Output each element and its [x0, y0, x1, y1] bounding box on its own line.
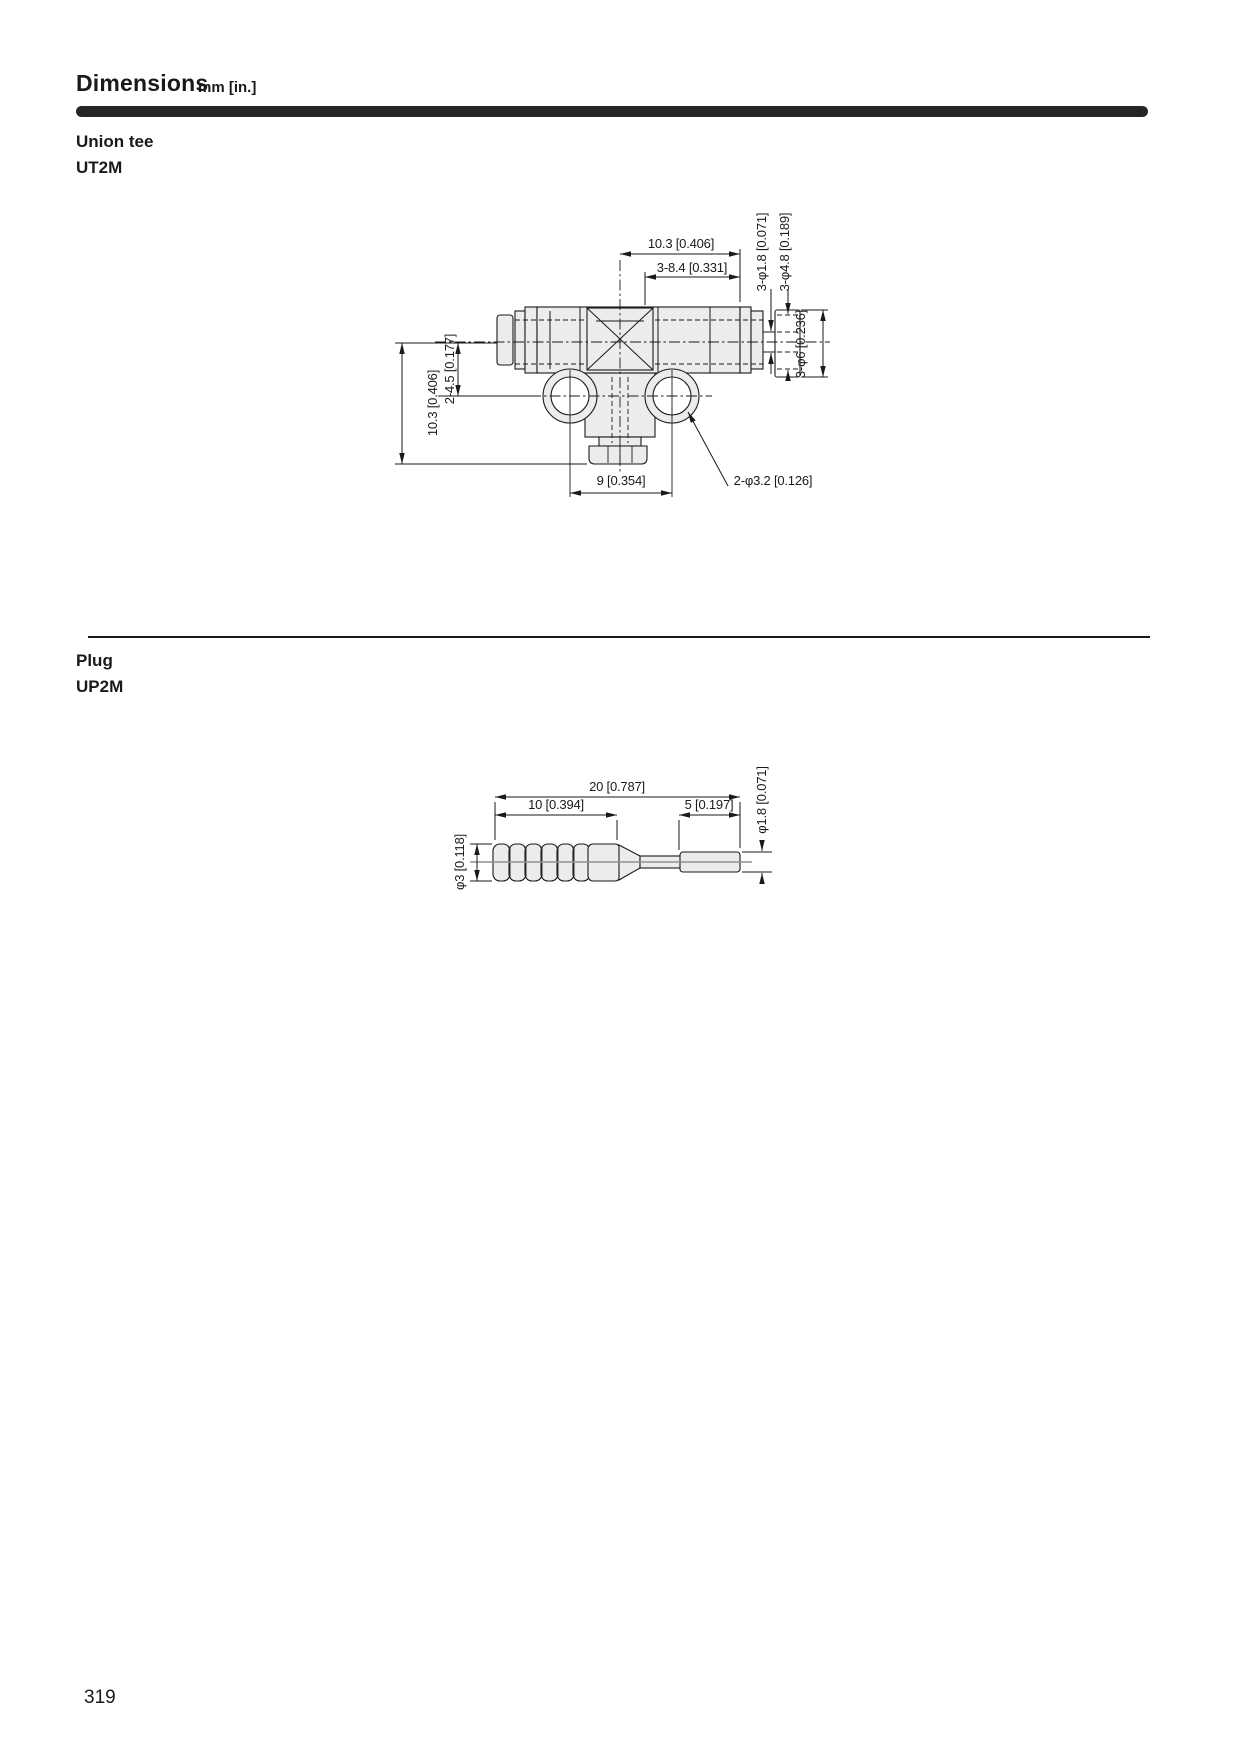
catalog-page: Dimensions mm [in.] Union tee UT2M: [0, 0, 1240, 1754]
section-separator: [88, 636, 1150, 638]
plug-body: [470, 844, 752, 881]
title-underline-bar: [76, 106, 1148, 117]
dim-label-tee-hole-3-2: 2-φ3.2 [0.126]: [734, 474, 813, 488]
plug-model: UP2M: [76, 677, 123, 697]
dim-label-plug-barb-dia: φ3 [0.118]: [453, 834, 467, 890]
dim-label-tee-hole-4-8: 3-φ4.8 [0.189]: [778, 213, 792, 292]
dim-label-tee-hole-6: 3-φ6 [0.236]: [794, 310, 808, 378]
union-tee-heading: Union tee: [76, 132, 153, 152]
dim-label-tee-port-depth: 3-8.4 [0.331]: [657, 261, 727, 275]
page-title: Dimensions: [76, 70, 208, 97]
dim-label-plug-barb-len: 10 [0.394]: [528, 798, 584, 812]
dim-label-tee-pitch: 9 [0.354]: [597, 474, 646, 488]
page-number: 319: [84, 1687, 116, 1709]
union-tee-model: UT2M: [76, 158, 122, 178]
dim-label-tee-height: 10.3 [0.406]: [426, 370, 440, 436]
units-note: mm [in.]: [198, 79, 256, 96]
dim-label-plug-tip-dia: φ1.8 [0.071]: [755, 766, 769, 833]
dim-label-tee-offset: 2-4.5 [0.177]: [443, 334, 457, 404]
dim-label-plug-tip-len: 5 [0.197]: [685, 798, 734, 812]
dim-label-plug-total: 20 [0.787]: [589, 780, 645, 794]
plug-heading: Plug: [76, 651, 113, 671]
dim-label-tee-hole-1-8: 3-φ1.8 [0.071]: [755, 213, 769, 292]
dim-label-tee-top-width: 10.3 [0.406]: [648, 237, 714, 251]
